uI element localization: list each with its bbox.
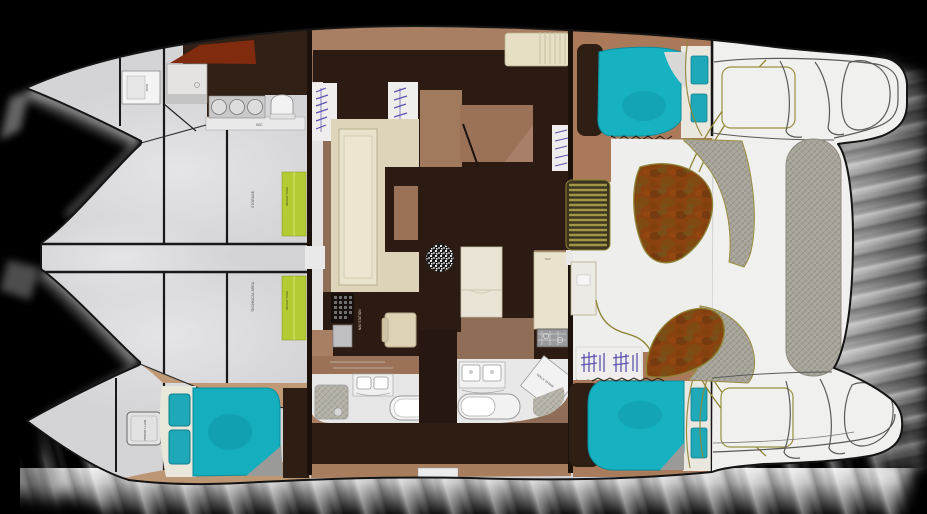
svg-text:NAV: NAV <box>545 257 551 261</box>
svg-text:WC: WC <box>256 122 263 127</box>
svg-text:WATER TANK: WATER TANK <box>285 291 289 310</box>
svg-text:NAV STATION: NAV STATION <box>358 309 362 330</box>
svg-text:STORAGE: STORAGE <box>251 190 255 208</box>
svg-text:TECHNICAL AREA: TECHNICAL AREA <box>251 281 255 312</box>
svg-text:BOW: BOW <box>145 84 149 91</box>
svg-text:WATER TANK: WATER TANK <box>285 187 289 206</box>
svg-text:BATT LOCKER: BATT LOCKER <box>143 420 147 441</box>
